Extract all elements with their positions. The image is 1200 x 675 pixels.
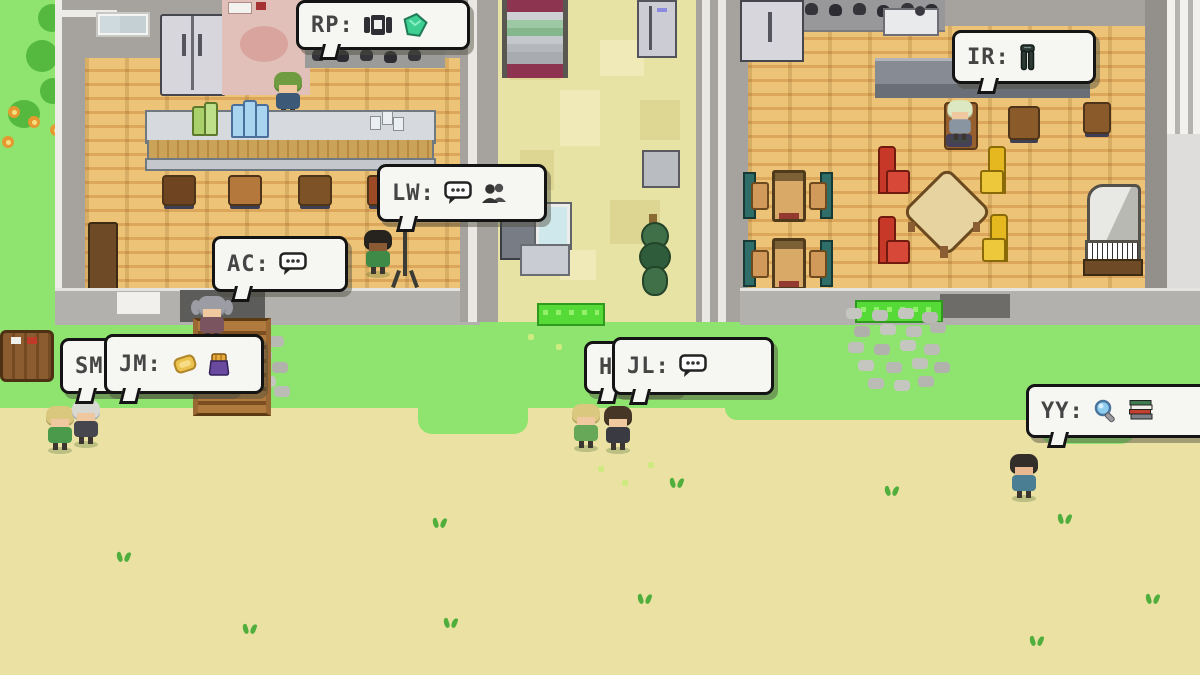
crate-item [27,337,37,344]
torso [1012,475,1036,491]
study-table [772,238,806,290]
books-icon [1128,399,1154,423]
counter-front [147,140,434,158]
fridge-handle [182,34,186,56]
torso [200,317,224,333]
press-machine-icon [363,13,393,37]
bar-stool [228,175,262,206]
character-shadow [574,445,598,452]
sprout [433,518,446,528]
sprout [1058,514,1071,524]
cup [393,117,404,131]
legs [53,443,58,450]
character-shadow [949,137,971,143]
torso [574,425,598,441]
speech-bubble-lw: LW: [377,164,547,222]
potted-plant [638,214,668,296]
table-leg [973,222,980,232]
wall-trim [55,0,62,322]
agent-initials: JL: [627,354,670,379]
hall-east-wall [696,0,740,322]
piano [1083,184,1141,276]
kitchen-counter [228,2,252,14]
side-chair [808,172,833,215]
speech-bubble-yy: YY: [1026,384,1200,438]
green-bottle [204,102,218,136]
sprout [670,478,683,488]
torso [606,427,630,443]
kitchen-table [240,26,288,62]
chat-dots-icon [279,252,307,276]
stool [1083,102,1111,134]
wall-trim [468,0,477,322]
bar-stool [162,175,196,206]
house-doormat [855,300,943,323]
cup [370,116,381,130]
east-wall [1145,0,1169,292]
vendor-crate [0,330,54,382]
character-yy[interactable] [1008,454,1040,500]
character-silver-west[interactable] [70,400,102,446]
sprout [444,618,457,628]
bag-icon [208,352,230,377]
character-shadow [366,271,390,278]
character-shadow [1012,495,1036,502]
table-top [902,167,993,258]
wall-trim [718,0,726,322]
telescope-leg [409,270,419,288]
legs [1017,491,1022,498]
sink-machine [883,8,939,36]
vending-door-line [649,6,652,50]
telescope-pole [403,228,407,276]
wall-trim [117,292,160,314]
torso [48,427,72,443]
cooking-pots [805,3,818,15]
floor-patch [560,90,600,146]
character-shadow [606,447,630,454]
fridge-handle [768,12,772,42]
refrigerator [740,0,804,62]
wall-trim [702,0,710,322]
dining-table [904,166,984,258]
grass-speckle [528,334,534,340]
floor-patch [640,100,680,140]
flower [28,116,40,128]
character-ir[interactable] [946,100,975,141]
desk [520,244,570,276]
side-chair [808,240,833,283]
legs [954,134,959,140]
legs [611,443,616,450]
flower [2,136,14,148]
character-shadow [74,441,98,448]
game-map: RP: IR: LW: AC: SM: JM: HI JL: [0,0,1200,675]
torso [276,93,300,109]
window-glass [100,16,146,33]
tree-canopy [26,40,58,72]
table-leg [908,222,915,232]
hall-floor [498,0,696,322]
sprout [117,552,130,562]
plant-foliage [642,266,668,296]
agent-initials: LW: [392,181,435,206]
grass-speckle [648,462,654,468]
speech-bubble-ir: IR: [952,30,1096,84]
door-shadow [940,294,1010,318]
bubble-tail [1047,432,1069,448]
character-jl[interactable] [602,406,634,452]
toast-icon [171,352,199,376]
legs [579,441,584,448]
striped-wall [1167,0,1200,134]
character-hi[interactable] [570,404,602,450]
kitchen-item [256,2,266,10]
agent-initials: RP: [311,13,354,38]
crate-item [11,337,21,344]
blue-bottle [255,104,269,138]
agent-initials: JM: [119,352,162,377]
side-chair [743,172,768,215]
trousers-icon [1019,44,1036,71]
tall-cabinet [88,222,118,292]
grass-speckle [622,480,628,486]
vending-machine [637,0,677,58]
agent-initials: YY: [1041,399,1084,424]
sprout [885,486,898,496]
fridge-divider [191,16,194,90]
speech-bubble-jl: JL: [612,337,774,395]
staircase [502,0,568,78]
torso [949,119,971,133]
cup [382,111,393,125]
legs [79,437,84,444]
piano-lid [1087,184,1141,246]
gem-icon [402,13,428,37]
fridge-handle [198,34,202,56]
refrigerator [160,14,226,96]
character-ac[interactable] [362,230,394,276]
people-icon [481,181,509,205]
table-leg [940,246,948,258]
yellow-chair [980,214,1010,268]
hall-doormat [537,303,605,326]
character-shadow [48,447,72,454]
grass-edge [725,400,1075,420]
faucet [915,6,925,16]
side-chair [743,240,768,283]
grass-speckle [598,466,604,472]
sprout [638,594,651,604]
chat-dots-icon [679,354,707,378]
sprout [1030,636,1043,646]
vending-label [657,8,667,12]
magnifier-icon [1093,398,1119,424]
torso [74,421,98,437]
agent-initials: AC: [227,252,270,277]
legs [371,267,376,274]
speech-bubble-rp: RP: [296,0,470,50]
torso [366,251,390,267]
flower [8,106,20,118]
speech-bubble-ac: AC: [212,236,348,292]
piano-base [1083,259,1143,276]
grass-edge [418,400,528,434]
agent-initials: IR: [967,45,1010,70]
east-wall-lower [1167,134,1200,292]
grass-speckle [556,344,562,350]
appliance [642,150,680,188]
study-table [772,170,806,222]
sprout [243,624,256,634]
speech-bubble-jm: JM: [104,334,264,394]
stool [1008,106,1040,140]
sprout [1146,594,1159,604]
chat-dots-icon [444,181,472,205]
stone-patch [846,308,862,319]
window [96,12,150,37]
bar-stool [298,175,332,206]
